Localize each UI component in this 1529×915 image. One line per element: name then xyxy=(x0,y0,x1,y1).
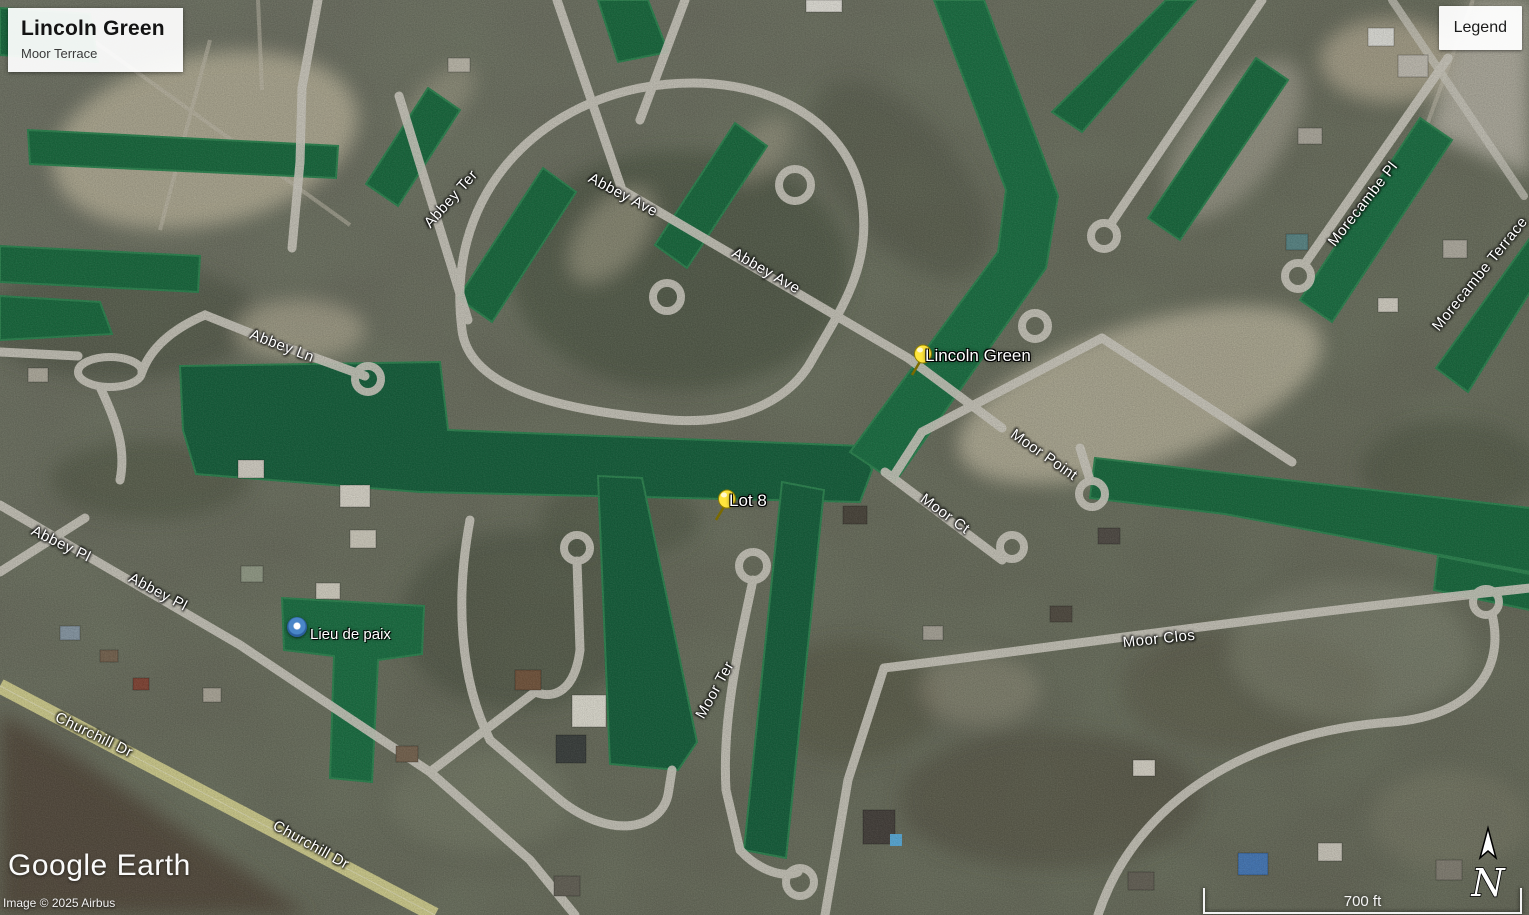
satellite-map[interactable] xyxy=(0,0,1529,915)
image-attribution: Image © 2025 Airbus xyxy=(3,896,115,910)
north-compass: N xyxy=(1466,824,1510,912)
north-arrow-icon xyxy=(1480,828,1496,858)
compass-n-label: N xyxy=(1470,861,1506,905)
google-earth-viewport[interactable]: Abbey Ter Abbey Ave Abbey Ave Abbey Ln A… xyxy=(0,0,1529,915)
poi-label: Lieu de paix xyxy=(310,626,391,643)
placemark-label: Lincoln Green xyxy=(925,346,1031,366)
legend-button[interactable]: Legend xyxy=(1439,6,1522,50)
placemark-label: Lot 8 xyxy=(729,491,767,511)
page-subtitle: Moor Terrace xyxy=(21,46,165,61)
title-card: Lincoln Green Moor Terrace xyxy=(8,8,183,72)
blue-dot-icon xyxy=(287,617,307,637)
google-earth-logo: Google Earth xyxy=(8,849,191,883)
page-title: Lincoln Green xyxy=(21,17,165,41)
